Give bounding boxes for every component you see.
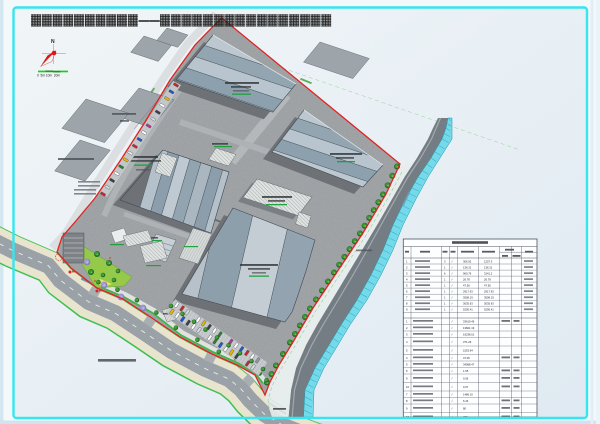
svg-text:2917.63: 2917.63	[463, 289, 473, 293]
svg-text:33619.45: 33619.45	[463, 319, 475, 323]
svg-text:47.06: 47.06	[463, 356, 470, 360]
svg-text:26.78: 26.78	[463, 277, 470, 281]
svg-text:N: N	[51, 39, 55, 45]
svg-text:5295.41: 5295.41	[463, 308, 473, 312]
svg-text:10: 10	[406, 385, 409, 389]
svg-text:0.07: 0.07	[463, 385, 469, 389]
svg-text:3508.19: 3508.19	[463, 296, 473, 300]
svg-text:136.31: 136.31	[484, 265, 493, 269]
svg-text:34088.47: 34088.47	[463, 362, 475, 366]
svg-text:3035.63: 3035.63	[484, 302, 494, 306]
svg-text:3508.19: 3508.19	[484, 296, 494, 300]
svg-text:3141.2: 3141.2	[484, 271, 493, 275]
svg-text:80: 80	[463, 406, 466, 410]
svg-text:1553.64: 1553.64	[463, 348, 473, 352]
svg-text:47.56: 47.56	[484, 283, 491, 287]
svg-text:13821.19: 13821.19	[463, 326, 475, 330]
svg-text:136.31: 136.31	[463, 265, 472, 269]
svg-text:26.78: 26.78	[484, 277, 491, 281]
svg-text:3035.63: 3035.63	[463, 302, 473, 306]
svg-text:1486.10: 1486.10	[463, 392, 473, 396]
svg-text:2917.63: 2917.63	[484, 289, 494, 293]
svg-text:1.55: 1.55	[463, 369, 469, 373]
svg-text:47.56: 47.56	[463, 283, 470, 287]
svg-text:19238.01: 19238.01	[463, 332, 475, 336]
svg-text:371.26: 371.26	[463, 340, 472, 344]
svg-text:0 5m 10m 20m: 0 5m 10m 20m	[37, 74, 60, 78]
svg-text:5295.41: 5295.41	[484, 308, 494, 312]
svg-text:960.76: 960.76	[463, 271, 472, 275]
svg-text:0.55: 0.55	[463, 376, 469, 380]
svg-text:6.43: 6.43	[463, 399, 469, 403]
svg-text:1207.3: 1207.3	[484, 259, 493, 263]
svg-text:306.92: 306.92	[463, 259, 472, 263]
